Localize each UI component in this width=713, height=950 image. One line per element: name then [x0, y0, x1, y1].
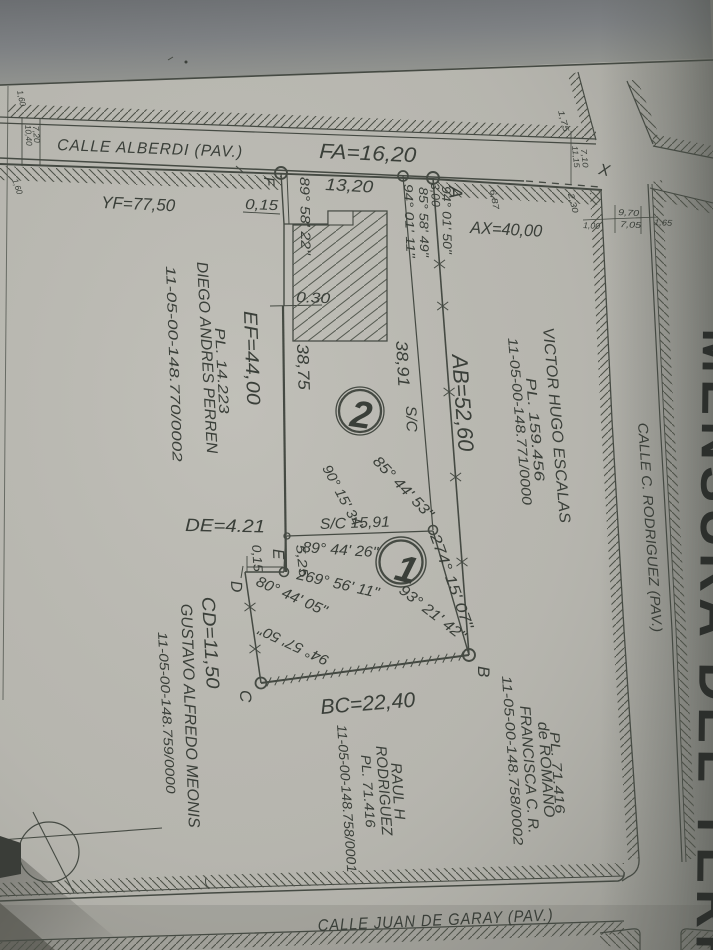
svg-text:0.30: 0.30 — [296, 290, 331, 307]
svg-text:0,15: 0,15 — [245, 197, 280, 214]
svg-text:7,05: 7,05 — [620, 219, 642, 230]
svg-text:S/C: S/C — [402, 406, 420, 433]
svg-text:FA=16,20: FA=16,20 — [319, 140, 417, 167]
svg-text:1,00: 1,00 — [583, 220, 601, 231]
svg-text:38,75: 38,75 — [293, 344, 313, 392]
svg-text:13,20: 13,20 — [325, 175, 375, 197]
svg-text:89° 58' 22": 89° 58' 22" — [297, 177, 313, 257]
svg-text:F: F — [260, 177, 277, 188]
svg-text:C: C — [236, 690, 255, 703]
svg-text:94° 01' 50": 94° 01' 50" — [439, 186, 454, 255]
svg-text:9,70: 9,70 — [618, 207, 640, 218]
svg-text:38,91: 38,91 — [392, 340, 412, 387]
svg-text:YF=77,50: YF=77,50 — [101, 193, 176, 215]
svg-text:DE=4.21: DE=4.21 — [185, 515, 265, 536]
svg-text:E: E — [269, 549, 286, 561]
svg-text:D: D — [227, 581, 244, 594]
svg-text:94° 01' 11": 94° 01' 11" — [401, 184, 418, 259]
svg-text:0,15: 0,15 — [249, 544, 266, 573]
svg-text:1,65: 1,65 — [654, 217, 673, 228]
svg-text:7,20: 7,20 — [31, 125, 42, 143]
svg-text:EF=44,00: EF=44,00 — [239, 310, 263, 405]
svg-text:B: B — [474, 666, 493, 677]
svg-text:AX=40,00: AX=40,00 — [469, 218, 543, 241]
